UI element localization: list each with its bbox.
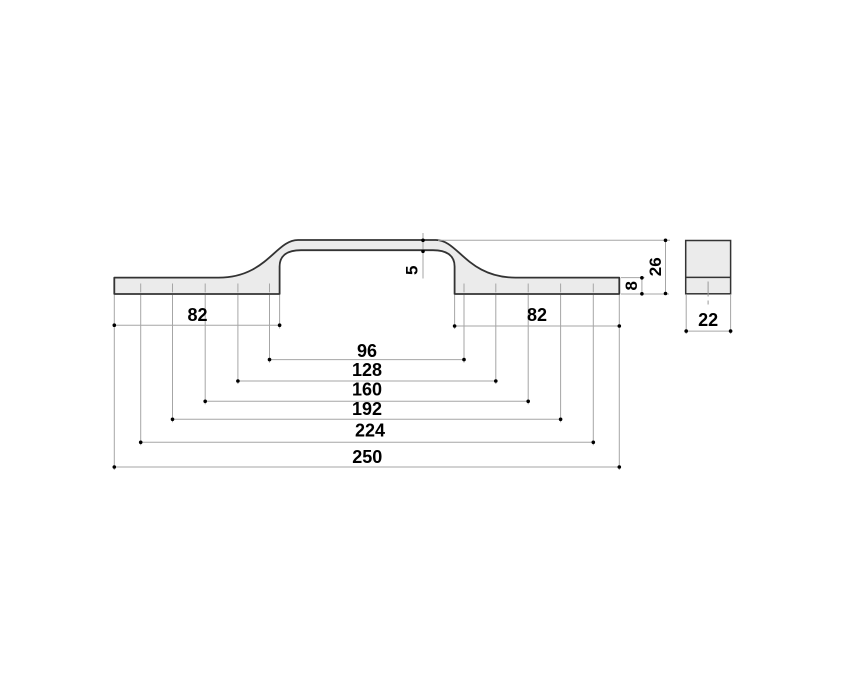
svg-text:22: 22 <box>698 310 718 330</box>
svg-text:160: 160 <box>352 380 382 400</box>
svg-text:26: 26 <box>646 257 665 276</box>
svg-text:250: 250 <box>352 447 382 467</box>
svg-text:128: 128 <box>352 360 382 380</box>
svg-text:82: 82 <box>527 305 547 325</box>
svg-text:192: 192 <box>352 399 382 419</box>
svg-text:96: 96 <box>357 341 377 361</box>
svg-text:82: 82 <box>187 305 207 325</box>
svg-text:224: 224 <box>355 421 385 441</box>
svg-text:5: 5 <box>403 266 422 275</box>
svg-text:8: 8 <box>622 281 641 290</box>
